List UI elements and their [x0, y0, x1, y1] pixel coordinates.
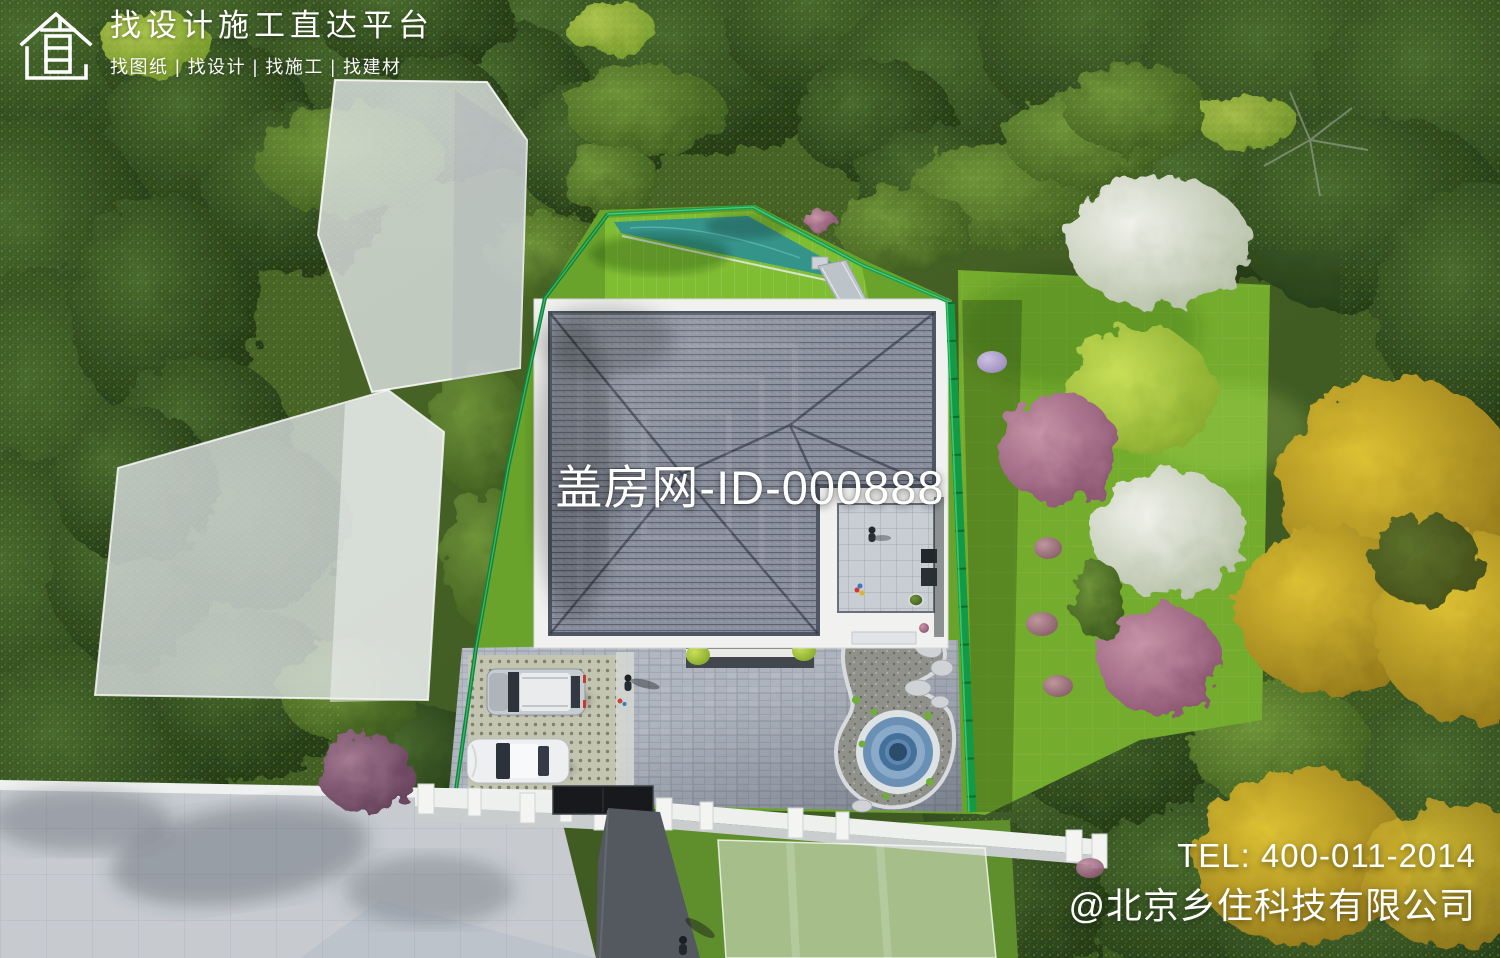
watermark-text: 盖房网-ID-000888: [555, 449, 944, 518]
toy: [623, 702, 627, 706]
contact-block: TEL: 400-011-2014 @北京乡住科技有限公司: [1068, 834, 1476, 929]
wall-gap-shadow: [934, 497, 944, 637]
platform-subtitle: 找图纸 | 找设计 | 找施工 | 找建材: [110, 53, 434, 79]
contact-company: @北京乡住科技有限公司: [1068, 882, 1476, 930]
platform-title: 找设计施工直达平台: [110, 8, 434, 44]
logo-text-block: 找设计施工直达平台 找图纸 | 找设计 | 找施工 | 找建材: [110, 8, 434, 79]
aerial-render-page: 找设计施工直达平台 找图纸 | 找设计 | 找施工 | 找建材 盖房网-ID-0…: [0, 0, 1500, 958]
logo-house-icon: [16, 8, 96, 84]
toy: [618, 699, 623, 704]
parked-sedan: [465, 739, 575, 783]
neighbor-panel-southeast: [718, 840, 996, 958]
platform-logo: 找设计施工直达平台 找图纸 | 找设计 | 找施工 | 找建材: [16, 8, 434, 84]
porch-step: [852, 632, 916, 644]
parked-suv: [487, 669, 592, 715]
contact-tel: TEL: 400-011-2014: [1068, 834, 1476, 878]
potted-plant: [909, 594, 923, 606]
